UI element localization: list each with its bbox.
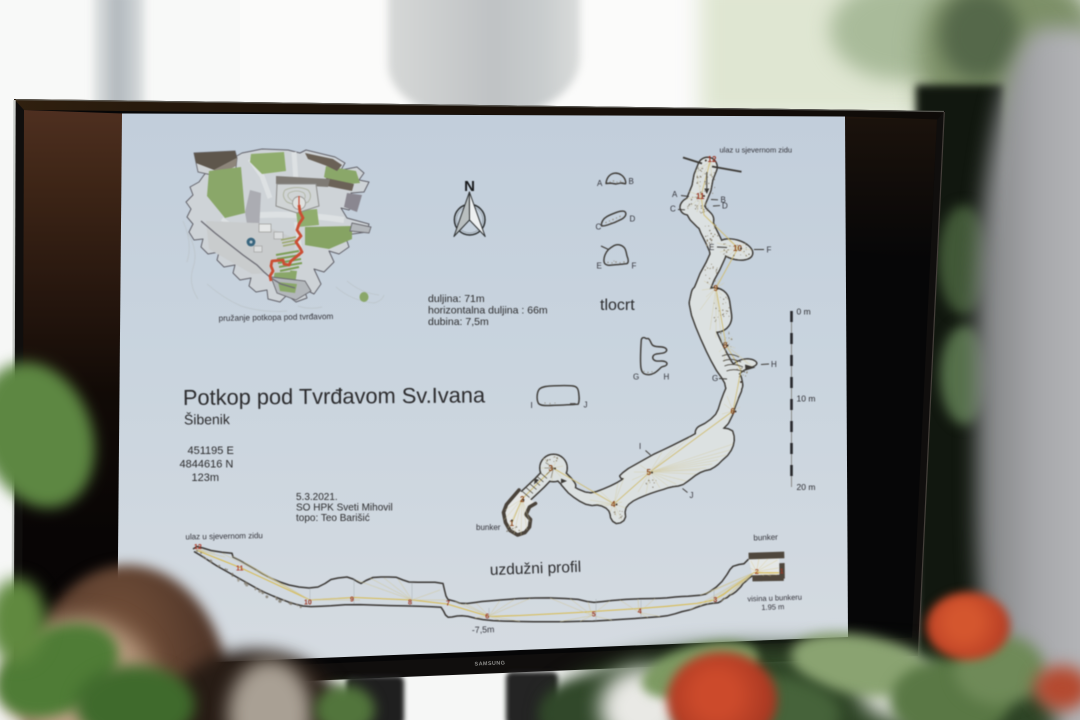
svg-text:E: E xyxy=(709,243,714,252)
svg-text:dubina: 7,5m: dubina: 7,5m xyxy=(428,316,489,328)
svg-text:6: 6 xyxy=(485,614,489,621)
svg-text:3: 3 xyxy=(549,464,554,473)
svg-text:1: 1 xyxy=(780,569,784,576)
svg-text:A: A xyxy=(597,179,603,188)
svg-text:B: B xyxy=(629,177,634,186)
svg-text:ulaz u sjevernom zidu: ulaz u sjevernom zidu xyxy=(185,531,263,541)
svg-text:F: F xyxy=(767,246,772,255)
svg-text:pružanje potkopa pod tvrđavom: pružanje potkopa pod tvrđavom xyxy=(219,312,334,323)
svg-text:uzdužni profil: uzdužni profil xyxy=(490,559,582,579)
svg-text:horizontalna duljina : 66m: horizontalna duljina : 66m xyxy=(428,305,548,317)
svg-text:tlocrt: tlocrt xyxy=(600,297,635,314)
svg-text:I: I xyxy=(531,401,533,410)
svg-text:5.3.2021.: 5.3.2021. xyxy=(296,492,338,503)
svg-text:D: D xyxy=(722,202,728,211)
svg-text:4: 4 xyxy=(638,608,642,615)
svg-text:bunker: bunker xyxy=(476,523,501,532)
svg-text:20 m: 20 m xyxy=(797,482,816,492)
svg-text:4: 4 xyxy=(611,500,616,509)
svg-text:C: C xyxy=(670,205,676,214)
svg-text:ulaz u sjevernom zidu: ulaz u sjevernom zidu xyxy=(720,146,793,155)
svg-text:I: I xyxy=(639,442,641,451)
svg-text:D: D xyxy=(630,215,636,224)
svg-text:J: J xyxy=(584,401,588,410)
svg-text:duljina: 71m: duljina: 71m xyxy=(428,293,485,305)
svg-text:Potkop pod Tvrđavom Sv.Ivana: Potkop pod Tvrđavom Sv.Ivana xyxy=(183,382,486,410)
svg-text:1.95 m: 1.95 m xyxy=(761,602,784,612)
svg-text:A: A xyxy=(672,190,678,199)
svg-text:Šibenik: Šibenik xyxy=(184,411,231,427)
svg-text:4844616 N: 4844616 N xyxy=(180,459,234,471)
svg-text:123m: 123m xyxy=(192,472,220,484)
svg-text:C: C xyxy=(596,223,602,232)
svg-text:5: 5 xyxy=(647,468,652,477)
svg-text:12: 12 xyxy=(708,155,717,164)
svg-text:10: 10 xyxy=(304,600,312,607)
svg-text:H: H xyxy=(771,360,777,369)
svg-text:G: G xyxy=(633,373,639,382)
svg-text:H: H xyxy=(664,373,670,382)
svg-text:bunker: bunker xyxy=(753,533,778,543)
svg-text:topo: Teo Barišić: topo: Teo Barišić xyxy=(296,513,370,524)
svg-text:12: 12 xyxy=(194,544,202,551)
svg-text:8: 8 xyxy=(408,600,412,607)
svg-text:451195 E: 451195 E xyxy=(188,445,234,457)
svg-text:J: J xyxy=(690,491,694,500)
svg-text:N: N xyxy=(464,178,475,195)
svg-text:SO HPK Sveti Mihovil: SO HPK Sveti Mihovil xyxy=(296,503,393,514)
svg-text:10 m: 10 m xyxy=(797,394,816,404)
svg-text:E: E xyxy=(597,262,602,271)
svg-text:-7,5m: -7,5m xyxy=(472,624,495,635)
svg-text:F: F xyxy=(632,262,637,271)
svg-text:0 m: 0 m xyxy=(797,307,811,317)
svg-text:G: G xyxy=(712,374,718,383)
svg-text:9: 9 xyxy=(350,597,354,604)
svg-text:5: 5 xyxy=(592,611,596,618)
svg-text:7: 7 xyxy=(446,601,450,608)
svg-text:11: 11 xyxy=(236,566,244,573)
svg-text:3: 3 xyxy=(713,597,717,604)
